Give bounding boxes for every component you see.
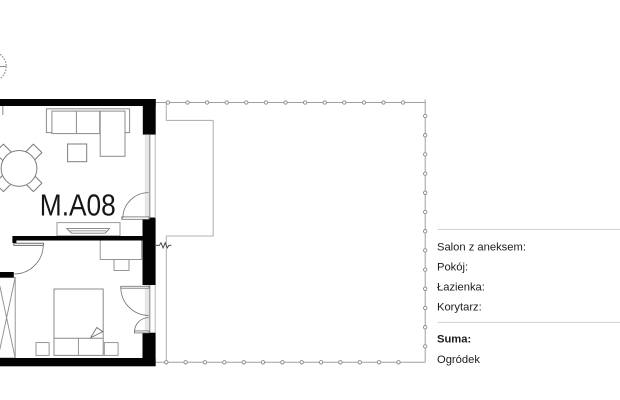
svg-text:Ogródek: Ogródek <box>437 354 480 366</box>
svg-text:Łazienka:: Łazienka: <box>437 282 485 294</box>
svg-text:Korytarz:: Korytarz: <box>437 302 482 314</box>
svg-text:Salon z aneksem:: Salon z aneksem: <box>437 242 526 254</box>
svg-text:Pokój:: Pokój: <box>437 262 468 274</box>
svg-text:Suma:: Suma: <box>437 333 471 345</box>
svg-text:M.A08: M.A08 <box>40 188 116 223</box>
